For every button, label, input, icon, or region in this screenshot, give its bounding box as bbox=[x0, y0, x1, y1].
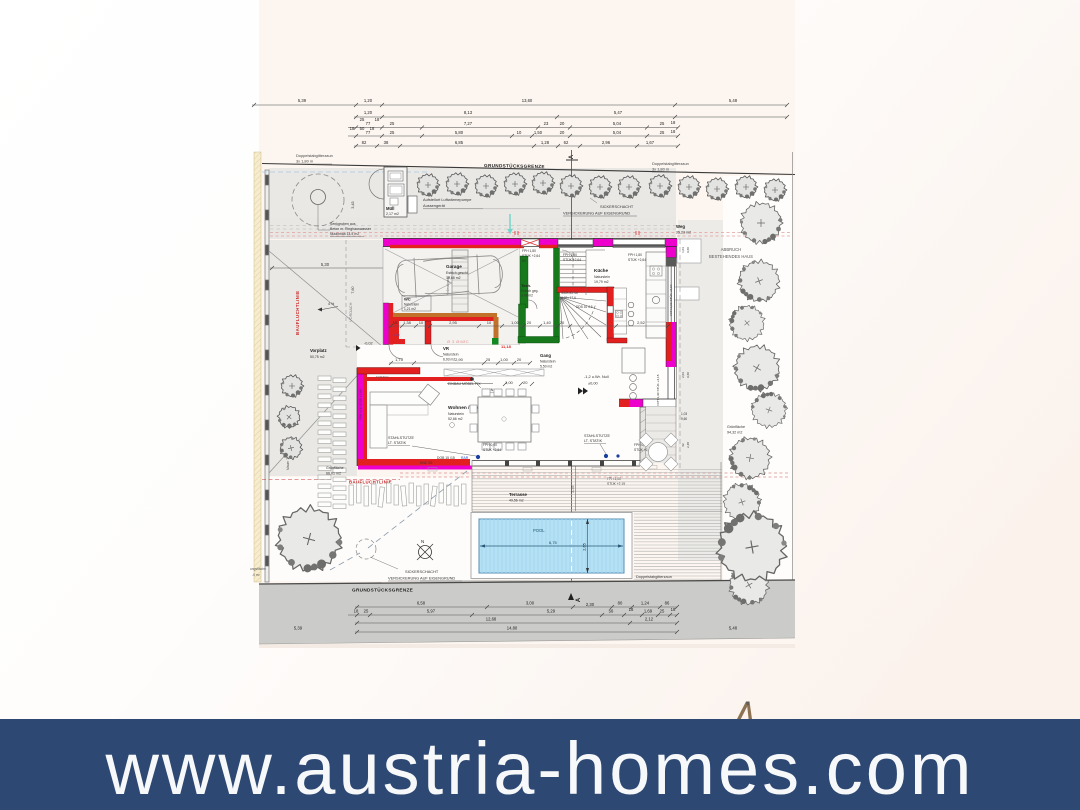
svg-text:2,17 m2: 2,17 m2 bbox=[386, 212, 399, 216]
svg-text:18: 18 bbox=[671, 607, 676, 612]
svg-text:3,43: 3,43 bbox=[351, 201, 355, 208]
svg-text:10: 10 bbox=[487, 320, 492, 325]
svg-text:1,00: 1,00 bbox=[511, 320, 520, 325]
svg-text:2,32: 2,32 bbox=[571, 485, 575, 492]
svg-text:Müll: Müll bbox=[386, 206, 394, 211]
svg-text:DOB 15 /15: DOB 15 /15 bbox=[437, 456, 455, 460]
svg-text:5,48: 5,48 bbox=[729, 98, 738, 103]
svg-text:4,88: 4,88 bbox=[394, 333, 400, 337]
svg-text:STÜK +2,64: STÜK +2,64 bbox=[563, 258, 581, 262]
svg-text:2,48: 2,48 bbox=[686, 442, 690, 448]
svg-text:FPH 1,80: FPH 1,80 bbox=[522, 249, 536, 253]
svg-text:6,58: 6,58 bbox=[417, 601, 426, 606]
svg-text:Garage: Garage bbox=[446, 264, 462, 269]
svg-text:1,00: 1,00 bbox=[500, 357, 509, 362]
svg-text:STAHLSTÜTZE: STAHLSTÜTZE bbox=[584, 434, 610, 438]
svg-text:Gang: Gang bbox=[540, 353, 551, 358]
svg-text:EINBAU MÖBEL FIX: EINBAU MÖBEL FIX bbox=[448, 382, 481, 386]
svg-text:6,93 m2: 6,93 m2 bbox=[443, 358, 455, 362]
svg-text:1,20: 1,20 bbox=[364, 110, 373, 115]
svg-text:4 %: 4 % bbox=[328, 302, 335, 306]
svg-text:Naturstein: Naturstein bbox=[443, 353, 459, 357]
svg-text:18: 18 bbox=[671, 129, 676, 134]
svg-text:LT. STATIK: LT. STATIK bbox=[388, 441, 407, 445]
svg-text:11,18: 11,18 bbox=[501, 344, 512, 349]
svg-text:A: A bbox=[569, 154, 575, 159]
svg-text:5,48: 5,48 bbox=[729, 626, 738, 631]
svg-text:Grünfläche: Grünfläche bbox=[727, 425, 745, 429]
svg-text:KNZ /15: KNZ /15 bbox=[420, 461, 433, 465]
svg-text:±0,00: ±0,00 bbox=[588, 381, 599, 386]
svg-text:19,68 m2: 19,68 m2 bbox=[446, 276, 461, 280]
svg-text:50: 50 bbox=[360, 126, 365, 131]
svg-text:Grünfläche: Grünfläche bbox=[326, 466, 344, 470]
svg-text:1,03: 1,03 bbox=[681, 412, 687, 416]
svg-text:POOL: POOL bbox=[533, 528, 545, 533]
svg-text:8,13: 8,13 bbox=[464, 110, 473, 115]
svg-text:VORDACH: VORDACH bbox=[348, 302, 353, 322]
svg-text:56: 56 bbox=[609, 609, 614, 614]
svg-text:Doppelstabgitterzaun: Doppelstabgitterzaun bbox=[296, 153, 333, 158]
svg-text:5,47: 5,47 bbox=[614, 110, 623, 115]
svg-text:Aussengerät: Aussengerät bbox=[423, 203, 446, 208]
svg-text:7,27: 7,27 bbox=[464, 121, 473, 126]
svg-text:Aufstellort Luftwärmepumpe: Aufstellort Luftwärmepumpe bbox=[423, 197, 471, 202]
svg-text:3,00: 3,00 bbox=[526, 601, 535, 606]
svg-text:25: 25 bbox=[390, 121, 395, 126]
svg-text:5,39: 5,39 bbox=[294, 626, 303, 631]
svg-text:5,04: 5,04 bbox=[613, 130, 622, 135]
svg-text:FPH 0,00 STÜK +2,64: FPH 0,00 STÜK +2,64 bbox=[359, 389, 363, 420]
svg-text:FPH 1,80: FPH 1,80 bbox=[563, 253, 577, 257]
svg-text:5,39: 5,39 bbox=[298, 98, 307, 103]
svg-text:3,48 m2: 3,48 m2 bbox=[521, 294, 533, 298]
svg-text:LT. STATIK: LT. STATIK bbox=[584, 439, 603, 443]
svg-text:Senkgruben aus: Senkgruben aus bbox=[330, 222, 356, 226]
svg-text:25: 25 bbox=[660, 130, 665, 135]
svg-text:Naturstein: Naturstein bbox=[594, 275, 610, 279]
svg-text:49,56 m2: 49,56 m2 bbox=[509, 499, 524, 503]
svg-text:10: 10 bbox=[517, 130, 522, 135]
svg-text:Weg: Weg bbox=[676, 224, 685, 229]
svg-text:1,40: 1,40 bbox=[543, 320, 552, 325]
svg-text:Naturstein: Naturstein bbox=[540, 360, 556, 364]
svg-text:1,24: 1,24 bbox=[641, 601, 650, 606]
svg-text:50,75 m2: 50,75 m2 bbox=[310, 355, 325, 359]
svg-text:FPH 0,00 STÜK +2,64: FPH 0,00 STÜK +2,64 bbox=[669, 284, 673, 315]
svg-text:25: 25 bbox=[660, 121, 665, 126]
svg-text:Estrich geschl.: Estrich geschl. bbox=[446, 271, 469, 275]
svg-text:5,80: 5,80 bbox=[455, 130, 464, 135]
svg-text:WC: WC bbox=[404, 297, 411, 302]
svg-text:25,23 m2: 25,23 m2 bbox=[676, 231, 691, 235]
svg-text:77: 77 bbox=[366, 130, 371, 135]
svg-text:19,79 m2: 19,79 m2 bbox=[594, 280, 609, 284]
svg-text:Doppelstabgitterzaun: Doppelstabgitterzaun bbox=[652, 161, 689, 166]
svg-text:25: 25 bbox=[364, 609, 369, 614]
svg-text:1,38: 1,38 bbox=[403, 320, 412, 325]
svg-text:ABBRUCH: ABBRUCH bbox=[721, 247, 741, 252]
svg-text:SIDB 85 /50: SIDB 85 /50 bbox=[561, 291, 578, 295]
svg-text:RAR: RAR bbox=[461, 456, 469, 460]
svg-text:BAUFLUCHTLINIE: BAUFLUCHTLINIE bbox=[349, 480, 392, 485]
svg-text:DDB 16 /15: DDB 16 /15 bbox=[576, 305, 593, 309]
svg-text:52,66 m2: 52,66 m2 bbox=[448, 417, 463, 421]
svg-text:Naturstein: Naturstein bbox=[448, 412, 464, 416]
svg-text:2,90: 2,90 bbox=[455, 357, 464, 362]
svg-text:VERSICKERUNG AUF EIGENGRUND: VERSICKERUNG AUF EIGENGRUND bbox=[388, 576, 455, 581]
svg-text:3x 1,80 m: 3x 1,80 m bbox=[296, 159, 313, 164]
svg-text:18: 18 bbox=[375, 117, 380, 122]
svg-text:62: 62 bbox=[564, 140, 569, 145]
svg-text:SICKERSCHACHT: SICKERSCHACHT bbox=[600, 204, 634, 209]
svg-text:82: 82 bbox=[362, 140, 367, 145]
svg-text:10: 10 bbox=[393, 320, 398, 325]
svg-text:62: 62 bbox=[681, 443, 685, 447]
svg-text:Terrasse: Terrasse bbox=[509, 492, 528, 497]
svg-text:GRUNDSTÜCKSGRENZE: GRUNDSTÜCKSGRENZE bbox=[484, 162, 545, 169]
svg-text:5,29: 5,29 bbox=[547, 609, 556, 614]
svg-text:3x 1,80 m: 3x 1,80 m bbox=[652, 167, 669, 172]
svg-text:86: 86 bbox=[665, 601, 670, 606]
svg-text:BESTEHENDES HAUS: BESTEHENDES HAUS bbox=[709, 254, 753, 259]
svg-text:ungsfläche: ungsfläche bbox=[250, 567, 266, 571]
svg-text:1,20: 1,20 bbox=[364, 98, 373, 103]
svg-text:FPH 0,00: FPH 0,00 bbox=[483, 443, 497, 447]
svg-text:STÜK +2,64: STÜK +2,64 bbox=[483, 448, 501, 452]
svg-text:Estrich geg.: Estrich geg. bbox=[521, 289, 538, 293]
svg-text:20: 20 bbox=[523, 380, 528, 385]
svg-text:Tech.: Tech. bbox=[521, 283, 531, 288]
svg-text:STÜK +2,64: STÜK +2,64 bbox=[628, 258, 646, 262]
svg-text:STAHLSTÜTZE: STAHLSTÜTZE bbox=[388, 436, 414, 440]
svg-text:10: 10 bbox=[419, 320, 424, 325]
svg-text:20: 20 bbox=[517, 357, 522, 362]
svg-text:80: 80 bbox=[522, 259, 526, 263]
svg-text:1,67: 1,67 bbox=[646, 140, 655, 145]
svg-text:20: 20 bbox=[527, 320, 532, 325]
svg-text:Ø 3 Ø4ØC: Ø 3 Ø4ØC bbox=[447, 339, 469, 344]
svg-text:94,32 m2: 94,32 m2 bbox=[727, 431, 742, 435]
svg-text:66,01 m2: 66,01 m2 bbox=[326, 472, 341, 476]
svg-text:2,12: 2,12 bbox=[645, 617, 654, 622]
svg-text:20: 20 bbox=[560, 121, 565, 126]
svg-text:Nutzinhalt 14,5 m2: Nutzinhalt 14,5 m2 bbox=[330, 232, 359, 236]
svg-text:20: 20 bbox=[560, 320, 565, 325]
svg-text:Doppelstabgitterzaun: Doppelstabgitterzaun bbox=[636, 575, 672, 579]
svg-text:Küche: Küche bbox=[594, 268, 608, 273]
svg-text:1,03: 1,03 bbox=[681, 247, 685, 253]
svg-text:7,60: 7,60 bbox=[351, 286, 355, 293]
svg-text:6,75: 6,75 bbox=[549, 540, 558, 545]
svg-text:FPH 1,80: FPH 1,80 bbox=[628, 253, 642, 257]
svg-text:25: 25 bbox=[486, 357, 491, 362]
svg-text:2,52: 2,52 bbox=[637, 320, 646, 325]
svg-text:N: N bbox=[421, 539, 424, 544]
svg-text:18: 18 bbox=[354, 609, 359, 614]
svg-text:BAUFLUCHTLINIE: BAUFLUCHTLINIE bbox=[295, 291, 300, 335]
svg-text:25: 25 bbox=[660, 609, 665, 614]
svg-text:KURZUG: KURZUG bbox=[376, 375, 389, 379]
svg-text:STÜK +2,15: STÜK +2,15 bbox=[607, 482, 625, 486]
svg-text:STÜK +2,64: STÜK +2,64 bbox=[522, 254, 540, 258]
svg-text:18: 18 bbox=[350, 126, 355, 131]
svg-text:25: 25 bbox=[360, 117, 365, 122]
svg-text:9,60: 9,60 bbox=[686, 247, 690, 253]
svg-text:2,30: 2,30 bbox=[586, 602, 595, 607]
svg-text:5,30: 5,30 bbox=[321, 262, 330, 267]
svg-text:2,03: 2,03 bbox=[681, 372, 685, 378]
svg-text:2,95: 2,95 bbox=[449, 320, 458, 325]
svg-text:13,60: 13,60 bbox=[522, 98, 533, 103]
svg-text:14,80: 14,80 bbox=[507, 626, 518, 631]
svg-text:25: 25 bbox=[390, 130, 395, 135]
svg-text:20: 20 bbox=[560, 130, 565, 135]
svg-text:4,68x 17,6: 4,68x 17,6 bbox=[561, 296, 576, 300]
svg-text:-0,02: -0,02 bbox=[364, 342, 373, 346]
svg-text:5,50 m2: 5,50 m2 bbox=[540, 365, 552, 369]
svg-text:Vorplatz: Vorplatz bbox=[310, 348, 327, 353]
svg-text:2,96: 2,96 bbox=[602, 140, 611, 145]
svg-text:1,28: 1,28 bbox=[541, 140, 550, 145]
svg-text:Naturstein: Naturstein bbox=[404, 303, 419, 307]
svg-text:9,60: 9,60 bbox=[681, 417, 687, 421]
svg-text:2,65: 2,65 bbox=[583, 543, 587, 550]
svg-text:18: 18 bbox=[671, 120, 676, 125]
svg-text:23: 23 bbox=[544, 121, 549, 126]
svg-text:A: A bbox=[576, 597, 582, 602]
svg-text:6,85: 6,85 bbox=[455, 140, 464, 145]
svg-text:Beton m. Ringhauswasser: Beton m. Ringhauswasser bbox=[330, 227, 372, 231]
svg-text:1,69: 1,69 bbox=[644, 609, 653, 614]
svg-text:VR: VR bbox=[443, 346, 450, 351]
svg-text:18: 18 bbox=[629, 607, 634, 612]
svg-text:38: 38 bbox=[384, 140, 389, 145]
svg-text:GRUNDSTÜCKSGRENZE: GRUNDSTÜCKSGRENZE bbox=[352, 587, 413, 593]
svg-text:-1,2 u.Wr. Null: -1,2 u.Wr. Null bbox=[584, 374, 609, 379]
svg-text:1,75: 1,75 bbox=[395, 357, 404, 362]
svg-text:1,21 m2: 1,21 m2 bbox=[404, 307, 416, 311]
svg-text:80: 80 bbox=[618, 601, 623, 606]
svg-text:18: 18 bbox=[370, 126, 375, 131]
svg-text:9,60: 9,60 bbox=[686, 372, 690, 378]
svg-text:SICKERSCHACHT: SICKERSCHACHT bbox=[405, 569, 439, 574]
svg-text:FPH 1,90 STÜK +3,15: FPH 1,90 STÜK +3,15 bbox=[656, 374, 660, 405]
svg-text:5,04: 5,04 bbox=[613, 121, 622, 126]
svg-text:5,97: 5,97 bbox=[427, 609, 436, 614]
svg-text:VERSICKERUNG AUF EIGENGRUND: VERSICKERUNG AUF EIGENGRUND bbox=[563, 211, 630, 216]
svg-text:-0 m²: -0 m² bbox=[252, 573, 261, 577]
svg-text:1,50: 1,50 bbox=[534, 130, 543, 135]
svg-text:12,68: 12,68 bbox=[486, 617, 497, 622]
